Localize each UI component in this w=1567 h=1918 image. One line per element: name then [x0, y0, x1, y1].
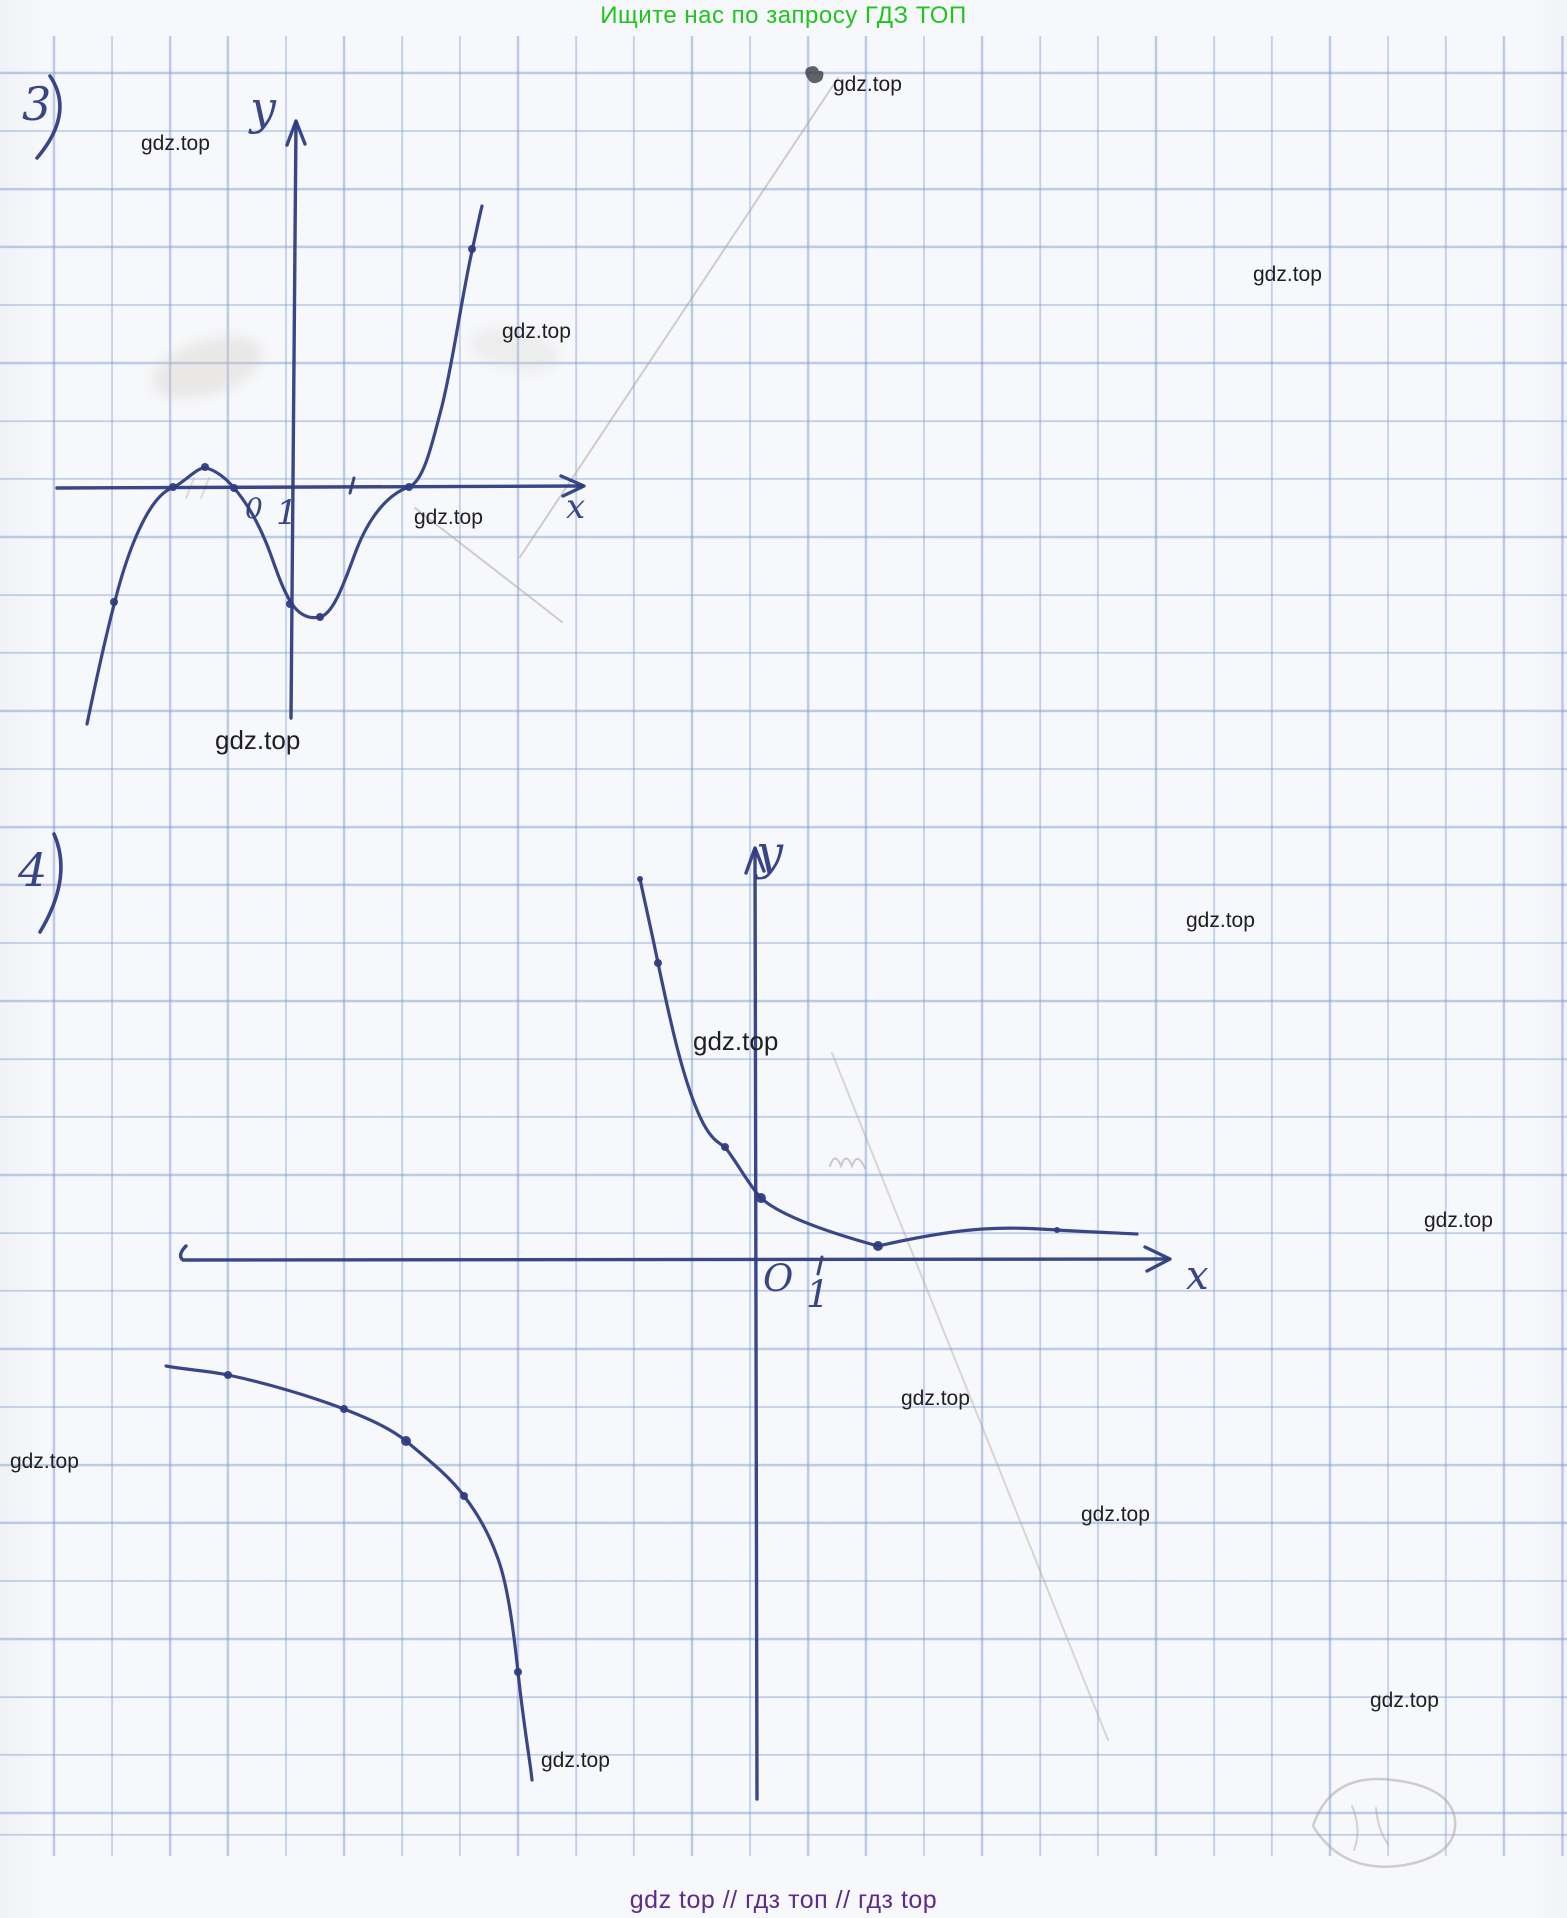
- curve-dot: [401, 1436, 411, 1446]
- curve-dot: [286, 600, 294, 608]
- graph3-y-axis: [291, 122, 296, 718]
- curve-dot: [460, 1492, 468, 1500]
- curve-dot: [110, 598, 118, 606]
- curve-dot: [230, 484, 238, 492]
- pencil-mark: [1352, 1806, 1388, 1850]
- handwritten-label: 1: [806, 1278, 830, 1311]
- watermark-text: gdz.top: [502, 321, 571, 343]
- handdrawn-graphs-canvas: [0, 0, 1567, 1918]
- graph3-x-axis: [57, 486, 582, 488]
- handwritten-label: 0: [245, 496, 263, 521]
- watermark-text: gdz.top: [541, 1750, 610, 1772]
- handwritten-label: у: [756, 832, 784, 875]
- watermark-text: gdz.top: [414, 507, 483, 529]
- curve-dot: [201, 463, 209, 471]
- graph3-cubic-sketch: [37, 76, 584, 724]
- graph4-curve-right-branch: [640, 879, 1137, 1246]
- handwritten-label: х: [1186, 1258, 1209, 1294]
- watermark-text: gdz.top: [1081, 1504, 1150, 1526]
- curve-dot: [340, 1405, 348, 1413]
- curve-dot: [1054, 1227, 1060, 1233]
- watermark-text: gdz.top: [1370, 1690, 1439, 1712]
- watermark-text: gdz.top: [693, 1028, 778, 1055]
- curve-dot: [169, 483, 177, 491]
- watermark-text: gdz.top: [1186, 910, 1255, 932]
- handwritten-label: 1: [276, 498, 298, 529]
- watermark-text: gdz.top: [215, 727, 300, 754]
- handwritten-label: 4: [18, 850, 47, 891]
- pencil-mark: [832, 1053, 1108, 1740]
- graph3-unit-tick: [350, 478, 354, 493]
- watermark-text: gdz.top: [1424, 1210, 1493, 1232]
- graph4-x-axis: [181, 1246, 1168, 1260]
- curve-dot: [654, 959, 662, 967]
- curve-dot: [514, 1668, 522, 1676]
- pencil-marks-group: [186, 66, 1455, 1867]
- watermark-text: gdz.top: [10, 1451, 79, 1473]
- curve-dot: [224, 1371, 232, 1379]
- handwritten-label: 3: [22, 84, 51, 125]
- scanned-notebook-page: Ищите нас по запросу ГДЗ ТОП 34ух01ухO1 …: [0, 0, 1567, 1918]
- promo-footer-text: gdz top // гдз топ // гдз top: [0, 1886, 1567, 1915]
- curve-dot: [756, 1193, 766, 1203]
- graph3-curve: [87, 206, 482, 724]
- graph4-curve-left-branch: [166, 1366, 532, 1780]
- handwritten-label: у: [250, 88, 277, 129]
- watermark-text: gdz.top: [833, 74, 902, 96]
- curve-dot: [405, 483, 413, 491]
- pencil-mark: [805, 66, 823, 83]
- curve-dot: [468, 245, 476, 253]
- handwritten-label: х: [566, 492, 585, 523]
- pencil-mark: [1313, 1779, 1455, 1867]
- graph4-y-axis: [755, 849, 757, 1799]
- watermark-text: gdz.top: [901, 1388, 970, 1410]
- handwritten-label: O: [763, 1262, 793, 1295]
- curve-dot: [721, 1143, 729, 1151]
- graph4-hyperbola-sketch: [40, 834, 1170, 1799]
- curve-dot: [873, 1241, 883, 1251]
- pencil-mark: [830, 1159, 865, 1169]
- watermark-text: gdz.top: [1253, 264, 1322, 286]
- curve-dot: [316, 613, 324, 621]
- curve-dot: [637, 876, 643, 882]
- watermark-text: gdz.top: [141, 133, 210, 155]
